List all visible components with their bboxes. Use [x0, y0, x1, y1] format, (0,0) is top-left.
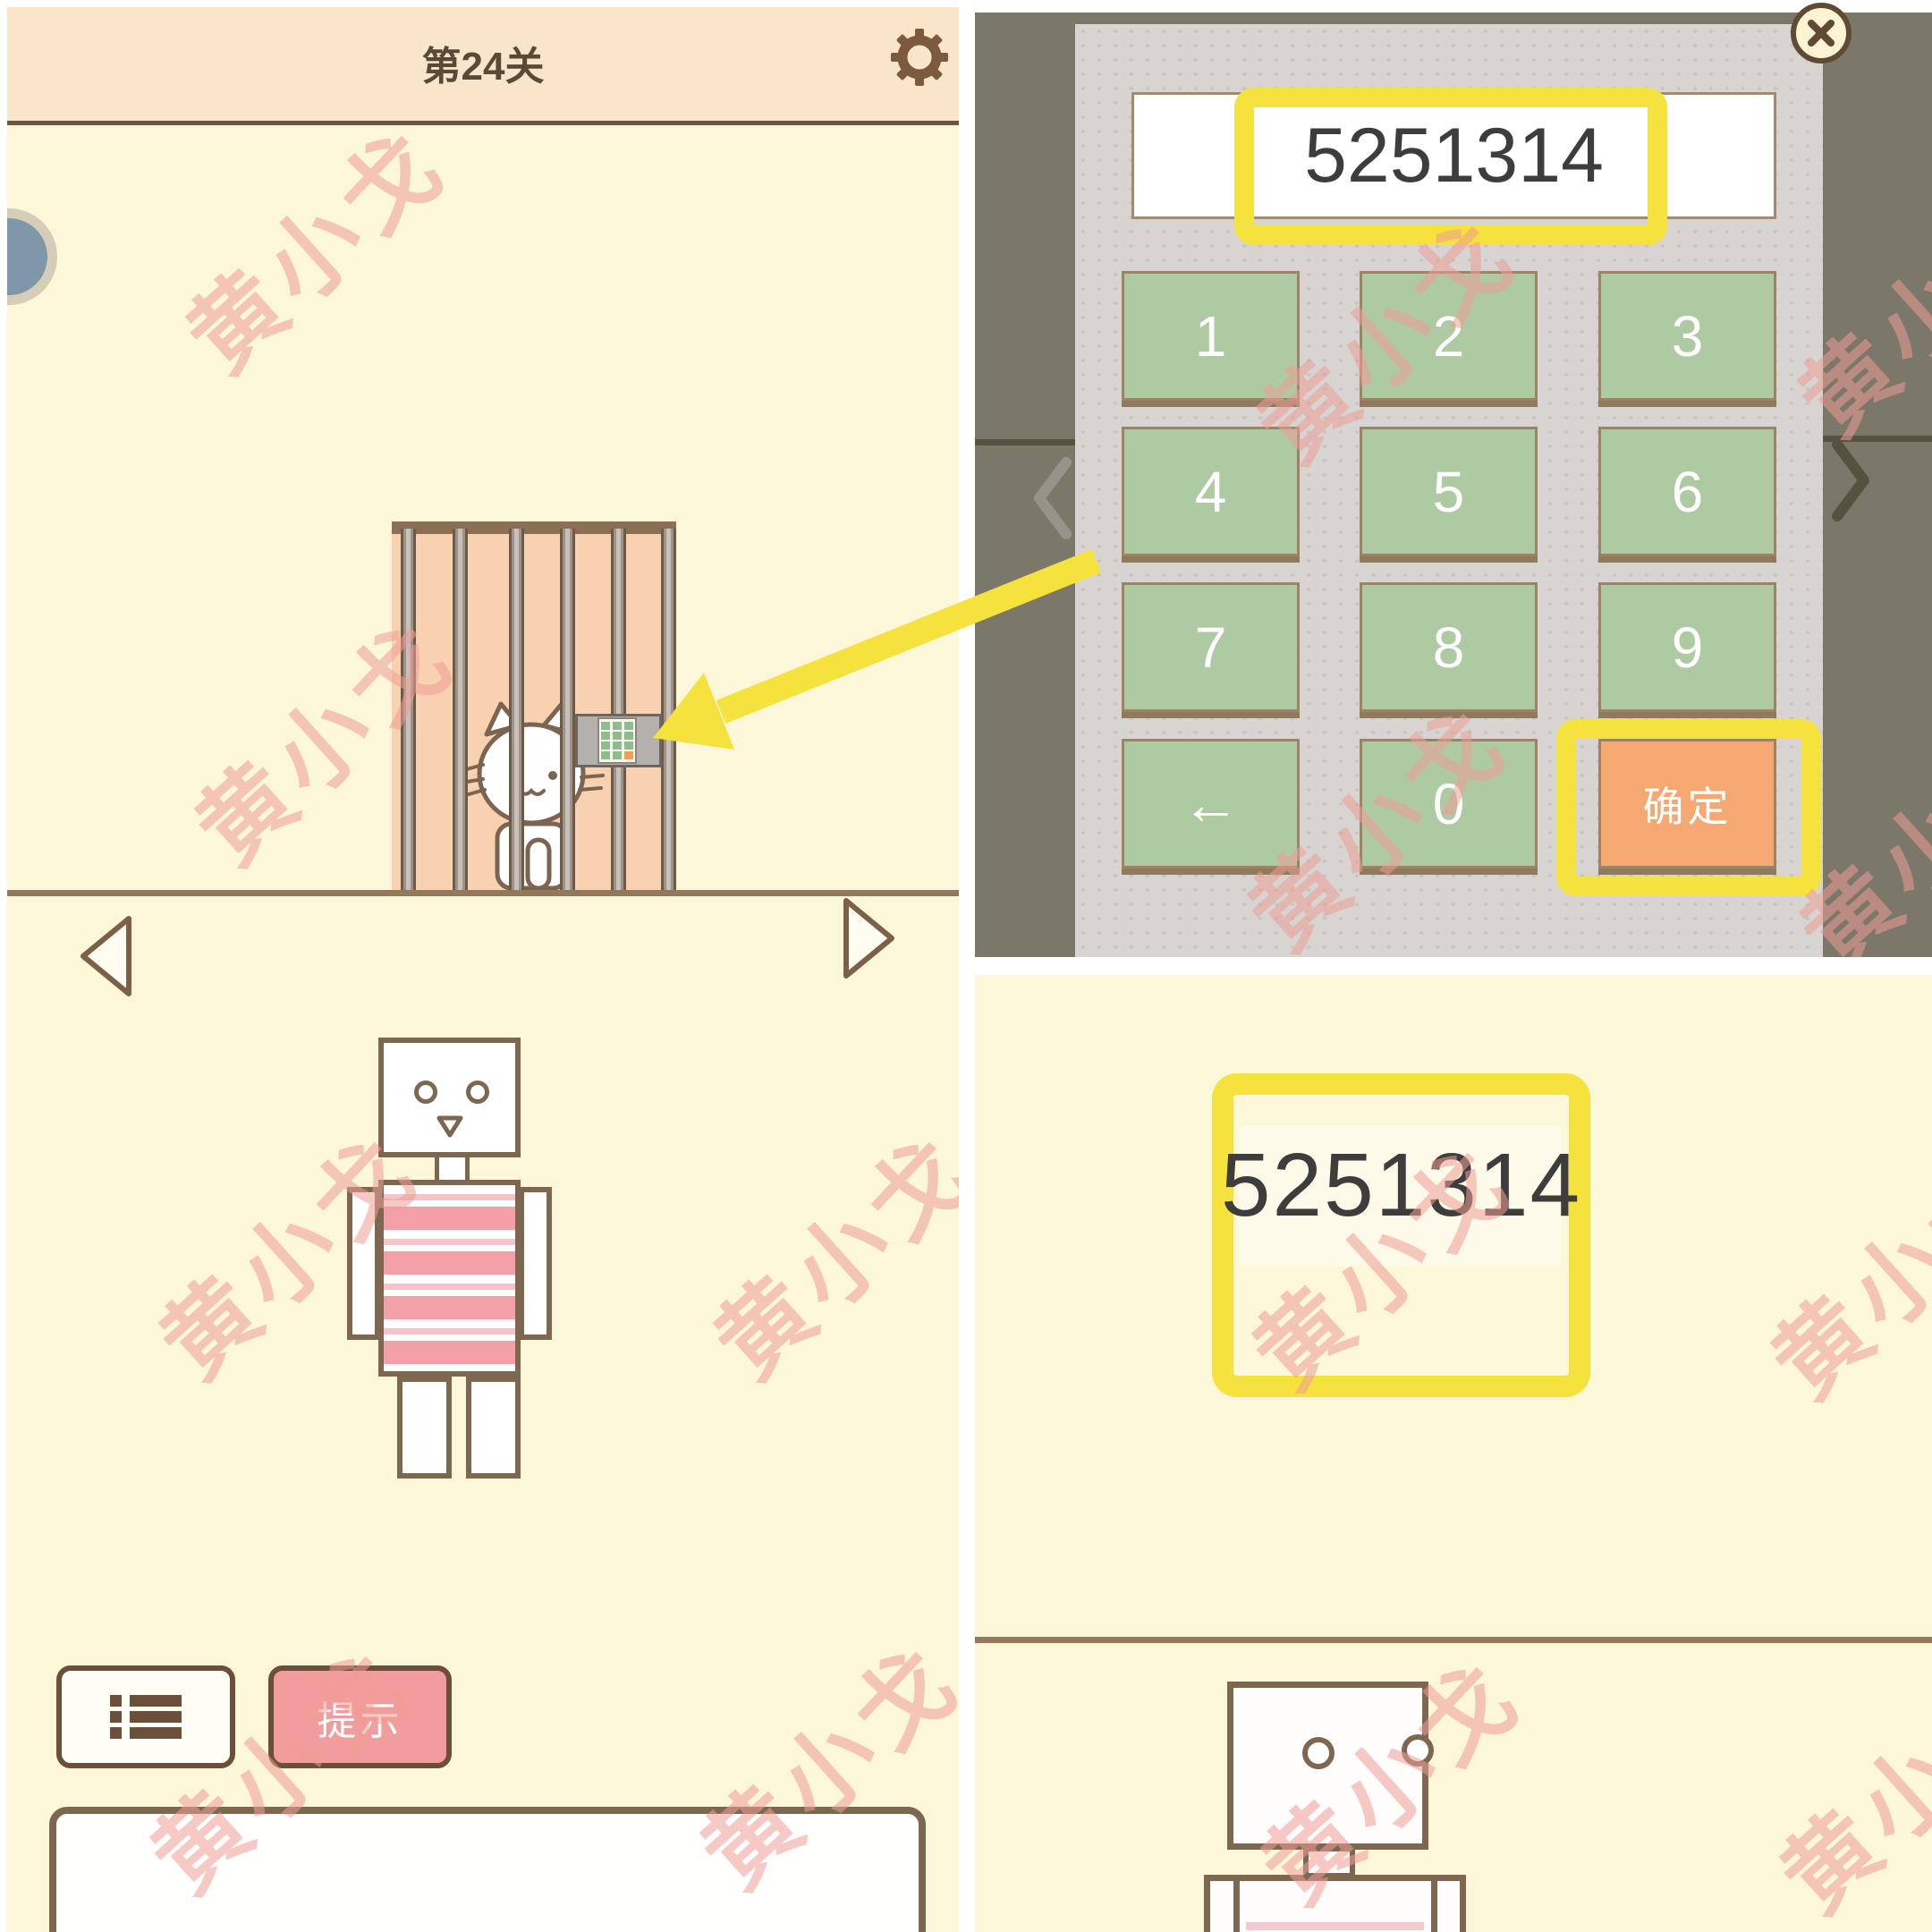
background-floor-line — [975, 439, 1075, 445]
key-9[interactable]: 9 — [1598, 582, 1776, 712]
robot-arm-divider — [1431, 1881, 1437, 1932]
chevron-left-icon[interactable] — [1032, 457, 1073, 544]
message-panel[interactable] — [49, 1807, 926, 1932]
hint-button[interactable]: 提示 — [268, 1665, 452, 1768]
robot-mouth — [436, 1114, 464, 1144]
robot-character-partial — [1188, 1674, 1474, 1932]
code-display-value: 5251314 — [1304, 112, 1604, 200]
watermark: 黄小戈 — [680, 1097, 959, 1402]
chevron-right-icon[interactable] — [1830, 439, 1871, 526]
robot-eye — [1402, 1734, 1434, 1767]
answer-screen: 5251314 黄小戈 黄小戈 黄小戈 黄小戈 — [975, 975, 1932, 1932]
watermark: 黄小戈 — [152, 91, 470, 396]
robot-leg-left — [397, 1377, 452, 1479]
robot-shirt-stripe — [1246, 1922, 1424, 1930]
list-icon — [110, 1690, 182, 1743]
robot-striped-torso — [378, 1180, 521, 1377]
robot-character — [345, 1032, 554, 1484]
key-4[interactable]: 4 — [1122, 427, 1300, 556]
robot-shoulders — [1204, 1875, 1466, 1932]
keypad-overlay-screen: 5251314 1 2 3 4 5 6 7 8 9 ← 0 确定 黄小戈 黄小戈… — [975, 13, 1932, 957]
next-arrow-button[interactable] — [837, 896, 900, 985]
cage-bar — [661, 529, 676, 890]
watermark: 黄小戈 — [1737, 1117, 1932, 1422]
cage-bar — [611, 529, 626, 890]
cage-bar — [509, 529, 524, 890]
floor-line — [975, 1637, 1932, 1643]
confirm-button[interactable]: 确定 — [1598, 739, 1776, 869]
prev-arrow-button[interactable] — [75, 914, 138, 1003]
page-title: 第24关 — [7, 34, 959, 91]
cage-top-beam — [392, 521, 676, 534]
key-2[interactable]: 2 — [1360, 271, 1538, 401]
cage-keypad[interactable] — [575, 714, 662, 772]
level-list-button[interactable] — [56, 1665, 235, 1768]
level-badge[interactable] — [7, 208, 57, 305]
key-3[interactable]: 3 — [1598, 271, 1776, 401]
cage-bar — [401, 529, 416, 890]
cage-bar — [453, 529, 468, 890]
watermark: 黄小戈 — [1746, 1631, 1932, 1932]
answer-code: 5251314 — [1212, 1134, 1590, 1237]
game-screen: 第24关 — [7, 7, 959, 1932]
robot-eye — [466, 1080, 489, 1104]
key-8[interactable]: 8 — [1360, 582, 1538, 712]
key-5[interactable]: 5 — [1360, 427, 1538, 556]
key-7[interactable]: 7 — [1122, 582, 1300, 712]
code-display-field[interactable]: 5251314 — [1131, 92, 1776, 219]
robot-arm-left — [347, 1187, 380, 1340]
key-1[interactable]: 1 — [1122, 271, 1300, 401]
gear-icon[interactable] — [891, 29, 948, 90]
cage-bar — [560, 529, 575, 890]
walkthrough-collage: 第24关 — [0, 0, 1932, 1932]
robot-head — [378, 1038, 521, 1157]
robot-head — [1227, 1682, 1428, 1850]
cage — [392, 521, 676, 890]
robot-eye — [1302, 1737, 1335, 1769]
robot-arm-divider — [1233, 1881, 1240, 1932]
key-backspace[interactable]: ← — [1122, 739, 1300, 869]
close-button[interactable] — [1789, 1, 1853, 65]
robot-eye — [414, 1080, 437, 1104]
key-0[interactable]: 0 — [1360, 739, 1538, 869]
hint-button-label: 提示 — [318, 1689, 403, 1746]
robot-leg-right — [466, 1377, 521, 1479]
robot-arm-right — [519, 1187, 552, 1340]
key-6[interactable]: 6 — [1598, 427, 1776, 556]
robot-neck — [1303, 1846, 1355, 1878]
